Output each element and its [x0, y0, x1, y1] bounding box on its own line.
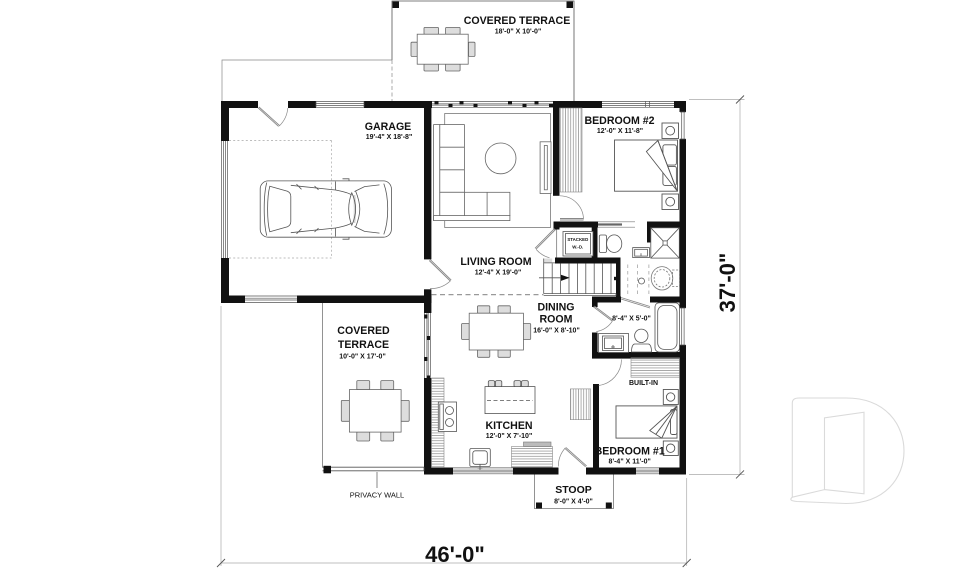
svg-text:12'-0" X 7'-10": 12'-0" X 7'-10" [486, 433, 533, 440]
svg-text:18'-0" X 10'-0": 18'-0" X 10'-0" [495, 29, 542, 36]
svg-text:DINING: DINING [537, 302, 574, 314]
svg-text:10'-0" X 17'-0": 10'-0" X 17'-0" [339, 354, 386, 361]
svg-text:COVERED: COVERED [337, 325, 390, 337]
svg-text:COVERED TERRACE: COVERED TERRACE [464, 15, 571, 27]
svg-text:STOOP: STOOP [555, 484, 592, 496]
svg-text:BEDROOM #1: BEDROOM #1 [595, 446, 665, 458]
svg-text:46'-0": 46'-0" [425, 542, 485, 567]
svg-text:BEDROOM #2: BEDROOM #2 [584, 115, 654, 127]
svg-text:37'-0": 37'-0" [715, 253, 740, 313]
svg-text:16'-0" X 8'-10": 16'-0" X 8'-10" [533, 328, 580, 335]
svg-text:LIVING ROOM: LIVING ROOM [460, 256, 531, 268]
svg-text:W.-D.: W.-D. [572, 245, 583, 250]
svg-text:PRIVACY WALL: PRIVACY WALL [350, 491, 404, 500]
svg-text:GARAGE: GARAGE [365, 121, 412, 133]
svg-text:19'-4" X 18'-8": 19'-4" X 18'-8" [366, 134, 413, 141]
svg-text:ROOM: ROOM [540, 314, 573, 326]
svg-text:12'-0" X 11'-8": 12'-0" X 11'-8" [597, 128, 643, 135]
svg-text:BUILT-IN: BUILT-IN [629, 380, 658, 387]
svg-text:12'-4" X 19'-0": 12'-4" X 19'-0" [475, 270, 522, 277]
svg-text:8'-0" X 4'-0": 8'-0" X 4'-0" [554, 499, 593, 506]
svg-text:TERRACE: TERRACE [338, 339, 389, 351]
svg-text:KITCHEN: KITCHEN [485, 420, 532, 432]
svg-text:STACKED: STACKED [567, 237, 588, 242]
svg-text:8'-4" X 11'-0": 8'-4" X 11'-0" [609, 459, 651, 466]
svg-text:8'-4" X 5'-0": 8'-4" X 5'-0" [612, 316, 651, 323]
